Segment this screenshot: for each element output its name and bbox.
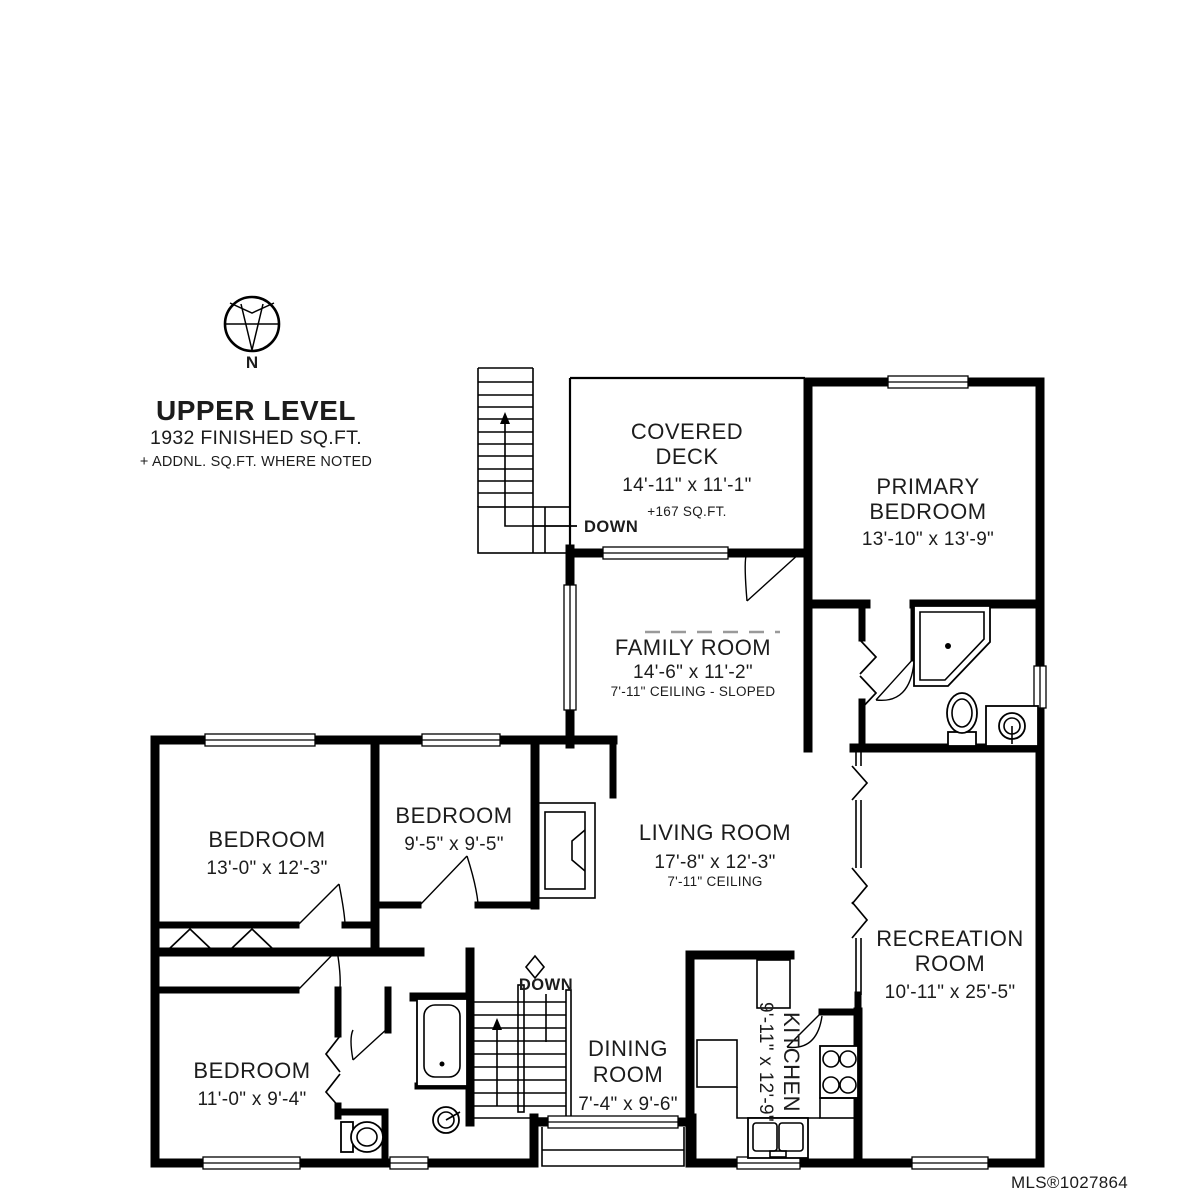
label-primary-bedroom: PRIMARY BEDROOM 13'-10" x 13'-9"	[862, 474, 994, 550]
label-kitchen: KITCHEN 9'-11" x 12'-9"	[755, 1002, 804, 1122]
plan-sqft: 1932 FINISHED SQ.FT.	[150, 427, 362, 449]
plan-note: + ADDNL. SQ.FT. WHERE NOTED	[140, 454, 372, 470]
corner-shower	[914, 606, 990, 686]
svg-text:14'-11" x 11'-1": 14'-11" x 11'-1"	[622, 475, 751, 496]
window-bathroom	[390, 1157, 428, 1169]
svg-text:9'-11" x 12'-9": 9'-11" x 12'-9"	[755, 1002, 776, 1122]
svg-text:KITCHEN: KITCHEN	[779, 1012, 804, 1112]
door-bedroom-middle	[420, 856, 478, 905]
svg-text:14'-6" x 11'-2": 14'-6" x 11'-2"	[633, 662, 753, 683]
label-dining-room: DINING ROOM 7'-4" x 9'-6"	[578, 1036, 678, 1115]
svg-text:DECK: DECK	[655, 444, 718, 469]
svg-text:RECREATION: RECREATION	[876, 926, 1024, 951]
floor-plan-page: N UPPER LEVEL 1932 FINISHED SQ.FT. + ADD…	[0, 0, 1200, 1200]
svg-text:DINING: DINING	[588, 1036, 668, 1061]
label-recreation-room: RECREATION ROOM 10'-11" x 25'-5"	[876, 926, 1024, 1003]
window-ensuite-right	[1034, 666, 1046, 708]
label-living-room: LIVING ROOM 17'-8" x 12'-3" 7'-11" CEILI…	[639, 820, 791, 889]
window-bedroom-middle-top	[422, 734, 500, 746]
label-bedroom-left: BEDROOM 13'-0" x 12'-3"	[206, 827, 327, 879]
svg-text:ROOM: ROOM	[915, 951, 985, 976]
svg-text:ROOM: ROOM	[593, 1062, 663, 1087]
svg-text:COVERED: COVERED	[631, 419, 743, 444]
doors	[298, 553, 914, 1060]
svg-text:BEDROOM: BEDROOM	[193, 1058, 310, 1083]
kitchen-sink	[748, 1118, 808, 1158]
svg-text:17'-8" x 12'-3": 17'-8" x 12'-3"	[654, 852, 775, 873]
svg-text:11'-0" x 9'-4": 11'-0" x 9'-4"	[197, 1089, 306, 1110]
stove	[820, 1046, 858, 1098]
door-bedroom-left	[298, 884, 345, 925]
kitchen-fixtures	[697, 960, 858, 1158]
svg-text:13'-0" x 12'-3": 13'-0" x 12'-3"	[206, 858, 327, 879]
svg-text:7'-4" x 9'-6": 7'-4" x 9'-6"	[578, 1094, 678, 1115]
svg-text:10'-11" x 25'-5": 10'-11" x 25'-5"	[885, 982, 1016, 1003]
window-primary-top	[888, 376, 968, 388]
window-bedroom-left-top	[205, 734, 315, 746]
main-down-label: DOWN	[519, 976, 573, 994]
window-entry-porch	[548, 1116, 678, 1128]
north-compass: N	[225, 297, 279, 372]
label-bedroom-middle: BEDROOM 9'-5" x 9'-5"	[395, 803, 512, 855]
window-family-top	[603, 547, 728, 559]
window-bedroom-lower	[203, 1157, 300, 1169]
entry-porch	[542, 1127, 684, 1166]
label-family-room: FAMILY ROOM 14'-6" x 11'-2" 7'-11" CEILI…	[611, 635, 776, 699]
svg-text:9'-5" x 9'-5": 9'-5" x 9'-5"	[404, 834, 504, 855]
ensuite-toilet	[947, 693, 977, 746]
svg-text:7'-11" CEILING: 7'-11" CEILING	[667, 874, 762, 889]
svg-text:7'-11" CEILING - SLOPED: 7'-11" CEILING - SLOPED	[611, 684, 776, 699]
ensuite-vanity	[986, 706, 1038, 746]
kitchen-counter	[820, 1098, 858, 1118]
compass-north-label: N	[246, 353, 258, 372]
label-bedroom-lower: BEDROOM 11'-0" x 9'-4"	[193, 1058, 310, 1110]
svg-text:LIVING ROOM: LIVING ROOM	[639, 820, 791, 845]
room-labels: COVERED DECK 14'-11" x 11'-1" +167 SQ.FT…	[193, 419, 1023, 1122]
window-recreation	[912, 1157, 988, 1169]
deck-down-label: DOWN	[584, 518, 638, 536]
door-family-deck	[745, 553, 800, 601]
bathroom-toilet	[341, 1122, 383, 1152]
svg-text:BEDROOM: BEDROOM	[869, 499, 986, 524]
door-bathroom	[351, 1028, 388, 1060]
shower-drain	[945, 643, 951, 649]
window-family-left	[564, 585, 576, 710]
mls-credit: MLS®1027864	[1011, 1173, 1128, 1192]
svg-text:BEDROOM: BEDROOM	[395, 803, 512, 828]
pedestal-sink	[433, 1107, 460, 1133]
bathtub	[417, 999, 467, 1086]
svg-text:+167 SQ.FT.: +167 SQ.FT.	[647, 504, 726, 519]
compass-needle	[241, 304, 263, 350]
svg-text:13'-10" x 13'-9": 13'-10" x 13'-9"	[862, 529, 994, 550]
title-block: UPPER LEVEL 1932 FINISHED SQ.FT. + ADDNL…	[140, 395, 372, 470]
door-ensuite	[876, 658, 914, 700]
label-covered-deck: COVERED DECK 14'-11" x 11'-1" +167 SQ.FT…	[622, 419, 751, 519]
deck-stairs-arrowhead	[500, 412, 510, 424]
svg-text:BEDROOM: BEDROOM	[208, 827, 325, 852]
plan-title: UPPER LEVEL	[156, 395, 356, 426]
hall-diamond-marker	[526, 956, 544, 978]
ensuite-fixtures	[914, 606, 1038, 746]
bathroom-fixtures	[341, 999, 467, 1152]
refrigerator	[697, 1040, 737, 1087]
svg-text:PRIMARY: PRIMARY	[876, 474, 979, 499]
kitchen-cabinet	[757, 960, 790, 1008]
floor-plan-drawing: N UPPER LEVEL 1932 FINISHED SQ.FT. + ADD…	[0, 0, 1200, 1200]
fireplace	[537, 803, 595, 898]
main-stairs-arrowhead	[492, 1018, 502, 1030]
svg-text:FAMILY ROOM: FAMILY ROOM	[615, 635, 771, 660]
